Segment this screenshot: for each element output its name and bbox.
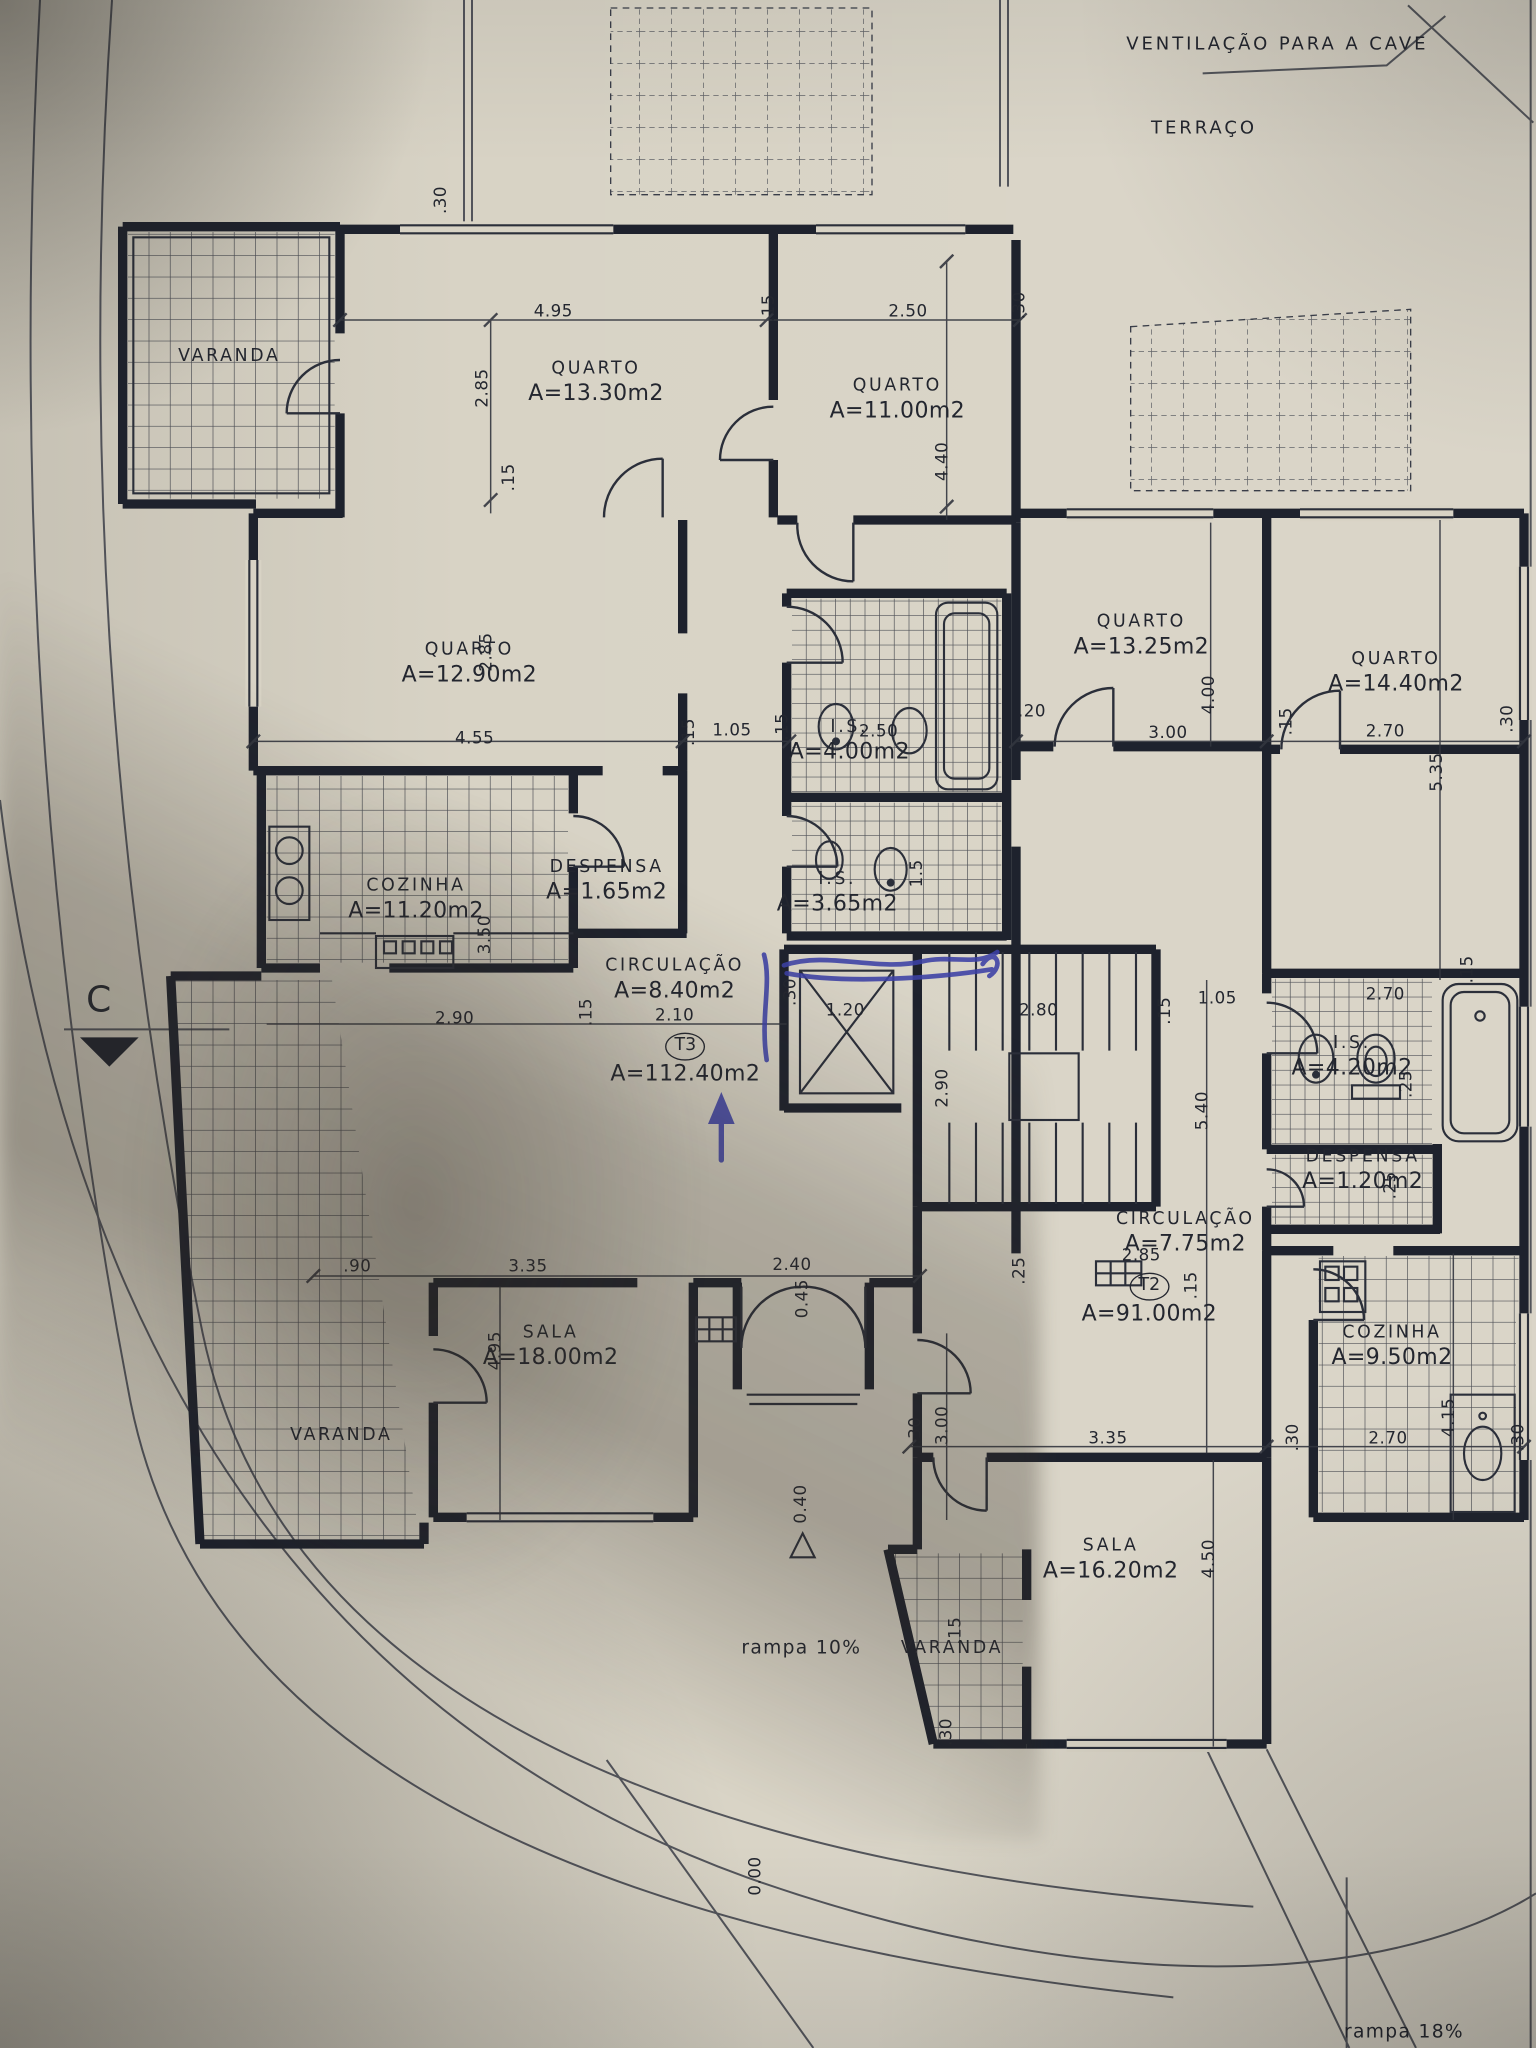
bathtub-t2 <box>1443 984 1518 1141</box>
pen-arrow-icon <box>708 1092 735 1124</box>
floor-plan-photo: VENTILAÇÃO PARA A CAVE TERRAÇO rampa 10%… <box>0 0 1536 2048</box>
terrace-hatch-right <box>1131 309 1411 490</box>
despensa2-tiles <box>1272 1155 1432 1224</box>
plan-drawing <box>0 0 1536 2048</box>
cozinha-t3-tiles <box>267 776 568 963</box>
terrace-hatch-top <box>611 8 872 195</box>
level-triangle <box>791 1533 815 1557</box>
varanda-tl-tiles <box>128 232 335 499</box>
elevator <box>800 971 893 1094</box>
pen-stroke-vertical <box>764 955 767 1060</box>
entrance-steps <box>747 1395 860 1404</box>
pen-annotations <box>708 952 997 1160</box>
is420-tiles <box>1272 979 1432 1144</box>
cozinha-t2-tiles <box>1319 1256 1519 1512</box>
varanda-left-tiles <box>175 980 420 1540</box>
stairs <box>949 952 1136 1204</box>
is400-tiles <box>792 599 1001 792</box>
